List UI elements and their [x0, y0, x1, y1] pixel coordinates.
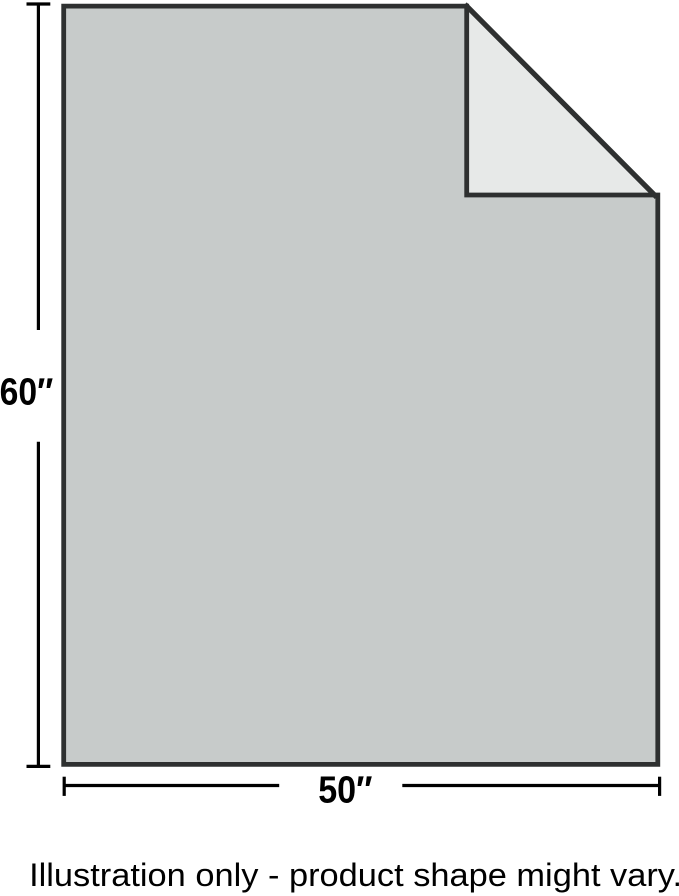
svg-text:50″: 50″ — [318, 769, 372, 811]
svg-text:60″: 60″ — [0, 371, 53, 413]
svg-text:Illustration only - product sh: Illustration only - product shape might … — [29, 857, 679, 893]
